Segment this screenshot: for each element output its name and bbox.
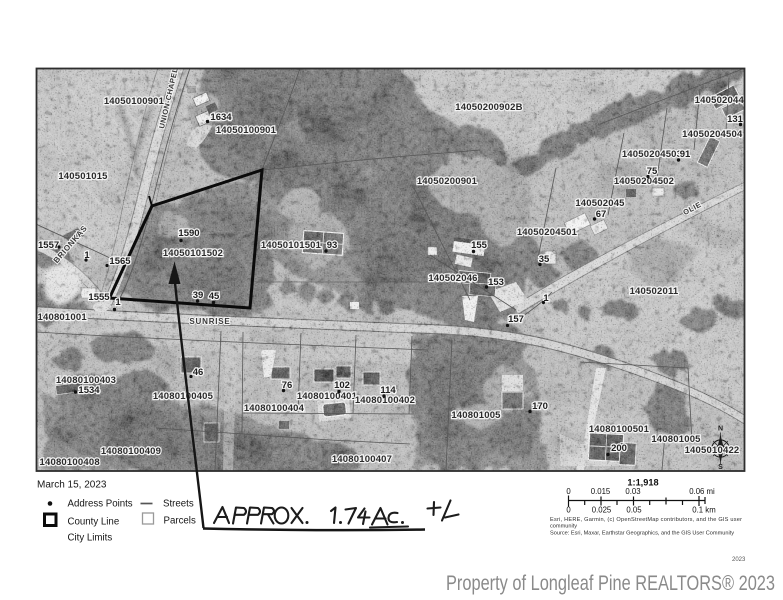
svg-text:14080100405: 14080100405: [153, 391, 214, 402]
svg-text:140801005: 140801005: [651, 434, 701, 445]
svg-text:1:1,918: 1:1,918: [627, 478, 658, 488]
svg-text:1590: 1590: [178, 228, 199, 239]
svg-text:0.06 mi: 0.06 mi: [689, 487, 715, 496]
svg-text:14050204501: 14050204501: [517, 227, 578, 238]
svg-text:1565: 1565: [109, 256, 131, 267]
svg-text:14050100901: 14050100901: [104, 96, 165, 107]
svg-text:March 15, 2023: March 15, 2023: [37, 480, 107, 491]
svg-text:102: 102: [334, 380, 350, 391]
svg-text:93: 93: [327, 240, 338, 251]
svg-text:14050100901: 14050100901: [216, 125, 277, 136]
svg-text:Address Points: Address Points: [68, 499, 133, 510]
svg-text:155: 155: [471, 240, 488, 251]
svg-text:14050200901: 14050200901: [417, 176, 478, 187]
svg-text:170: 170: [532, 401, 548, 412]
svg-text:14080100401: 14080100401: [297, 391, 358, 402]
svg-text:46: 46: [193, 367, 204, 378]
svg-text:14080100404: 14080100404: [244, 403, 305, 414]
svg-text:County Line: County Line: [68, 517, 120, 528]
svg-text:153: 153: [488, 277, 504, 288]
svg-text:0.015: 0.015: [591, 487, 611, 496]
svg-text:140501015: 140501015: [58, 171, 108, 182]
svg-text:1557: 1557: [38, 240, 59, 251]
svg-text:1534: 1534: [78, 385, 100, 396]
svg-text:45: 45: [209, 291, 220, 302]
svg-text:0.03: 0.03: [625, 487, 640, 496]
svg-text:2023: 2023: [732, 557, 746, 563]
svg-text:140502011: 140502011: [630, 286, 679, 297]
svg-text:67: 67: [596, 209, 607, 220]
svg-text:14050200902B: 14050200902B: [455, 102, 522, 113]
svg-text:14050204504: 14050204504: [682, 129, 743, 140]
svg-text:City Limits: City Limits: [68, 533, 113, 544]
svg-text:Source: Esri, Maxar, Earthstar: Source: Esri, Maxar, Earthstar Geographi…: [550, 531, 734, 537]
svg-text:SUNRISE: SUNRISE: [189, 317, 230, 326]
svg-text:1555: 1555: [88, 292, 110, 303]
svg-text:Parcels: Parcels: [164, 516, 196, 527]
svg-text:0.05: 0.05: [626, 506, 642, 515]
svg-text:14080100501: 14080100501: [589, 424, 650, 435]
svg-text:0: 0: [566, 506, 571, 515]
svg-text:140502045: 140502045: [575, 198, 625, 209]
svg-text:140801001: 140801001: [38, 312, 88, 323]
svg-text:14050204503: 14050204503: [622, 149, 682, 160]
svg-text:157: 157: [508, 314, 524, 325]
svg-text:114: 114: [380, 385, 396, 396]
svg-text:14080100408: 14080100408: [40, 457, 100, 468]
svg-text:14050204502: 14050204502: [614, 176, 674, 187]
svg-text:140801005: 140801005: [451, 410, 501, 421]
svg-text:140502046: 140502046: [428, 273, 477, 284]
svg-text:39: 39: [193, 290, 204, 301]
svg-text:14050101501: 14050101501: [261, 240, 322, 251]
svg-text:14080100409: 14080100409: [101, 446, 161, 457]
svg-text:0.025: 0.025: [592, 506, 612, 515]
svg-text:14080100407: 14080100407: [332, 454, 392, 465]
svg-text:1: 1: [115, 297, 121, 308]
svg-text:0.1 km: 0.1 km: [692, 506, 715, 515]
svg-text:community: community: [550, 524, 577, 530]
svg-text:0: 0: [566, 487, 571, 496]
svg-text:Streets: Streets: [163, 499, 194, 510]
svg-text:200: 200: [611, 443, 627, 454]
svg-text:1634: 1634: [210, 112, 232, 123]
svg-text:91: 91: [680, 149, 691, 160]
svg-text:Esri, HERE, Garmin, (c) OpenSt: Esri, HERE, Garmin, (c) OpenStreetMap co…: [550, 517, 742, 523]
svg-text:140502044: 140502044: [695, 95, 745, 106]
svg-text:S: S: [718, 464, 723, 471]
svg-text:1405010422: 1405010422: [685, 445, 740, 456]
svg-text:14050101502: 14050101502: [163, 248, 223, 259]
svg-text:N: N: [718, 426, 723, 433]
svg-text:Property of Longleaf Pine REAL: Property of Longleaf Pine REALTORS® 2023: [446, 571, 775, 595]
